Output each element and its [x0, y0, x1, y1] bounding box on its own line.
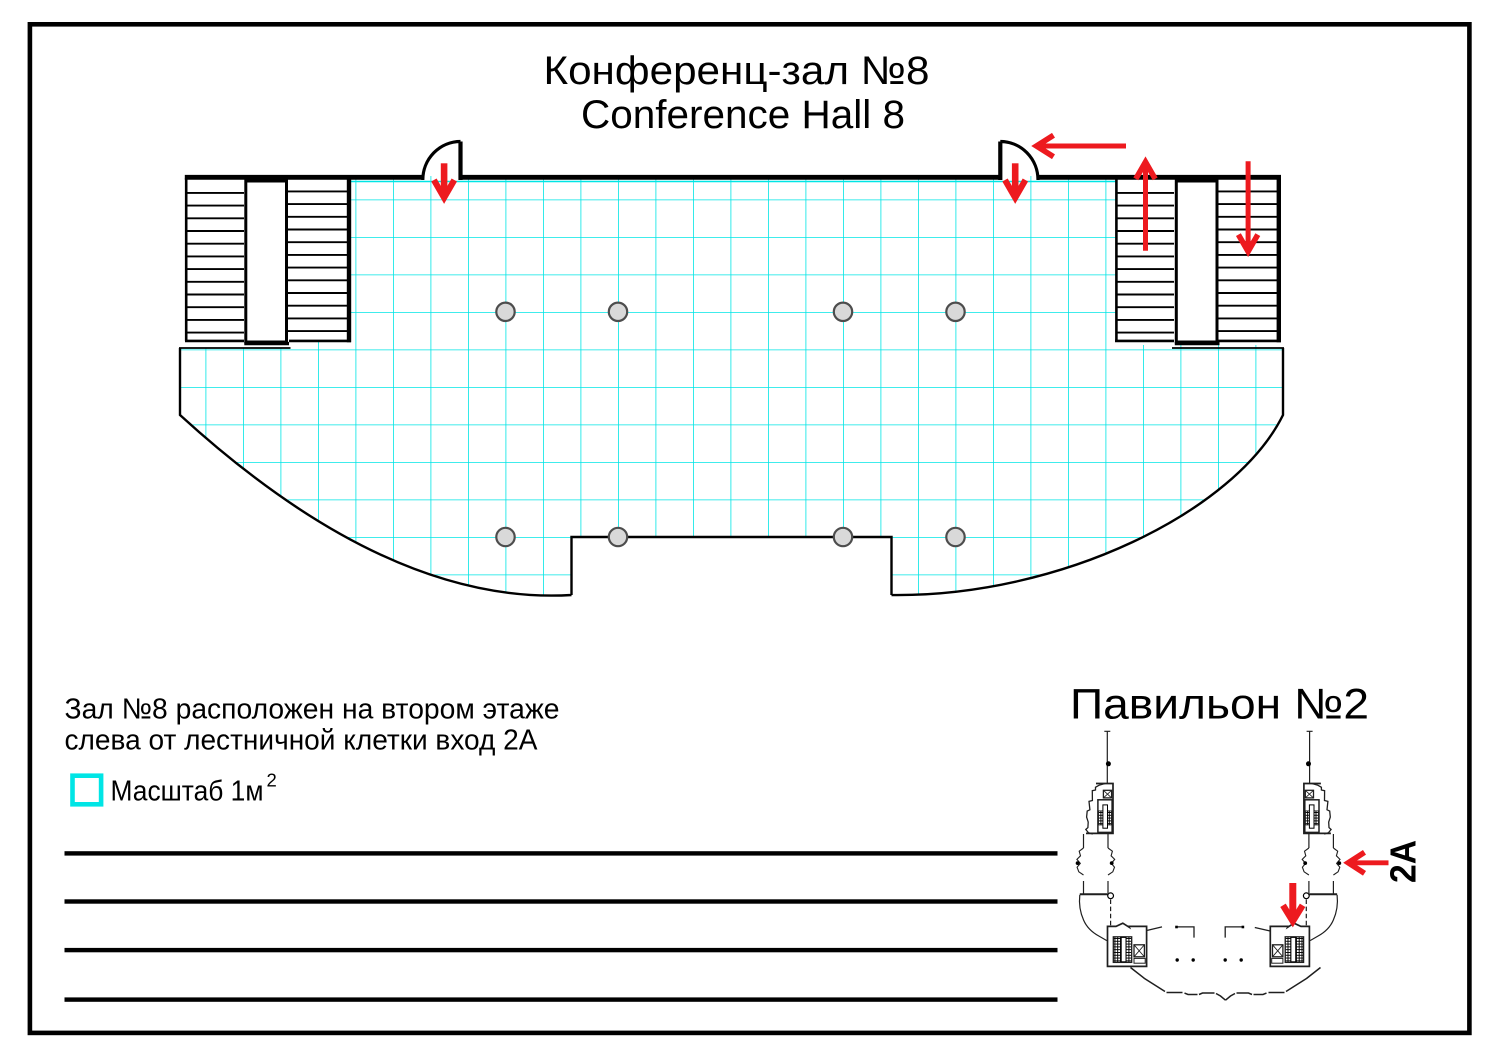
- svg-text:2: 2: [267, 769, 277, 790]
- svg-text:2А: 2А: [1383, 840, 1424, 883]
- svg-text:слева от лестничной клетки вхо: слева от лестничной клетки вход 2А: [65, 725, 539, 757]
- svg-text:Масштаб 1м: Масштаб 1м: [111, 776, 264, 808]
- svg-text:Павильон №2: Павильон №2: [1070, 681, 1369, 729]
- svg-text:Зал №8 расположен на втором эт: Зал №8 расположен на втором этаже: [65, 694, 560, 726]
- svg-text:Конференц-зал №8: Конференц-зал №8: [544, 49, 930, 93]
- svg-text:Conference Hall 8: Conference Hall 8: [581, 93, 905, 137]
